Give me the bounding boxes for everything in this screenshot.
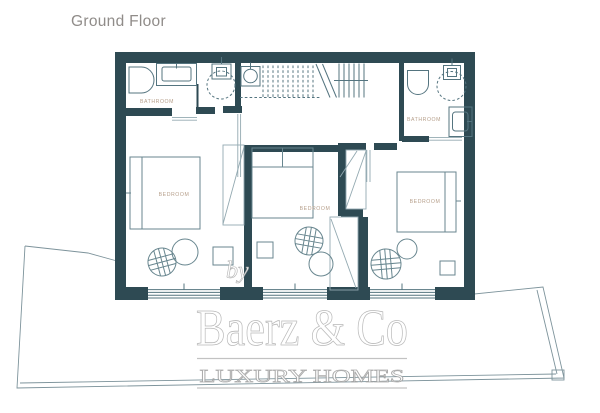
room-label-bathroom-right: BATHROOM [407, 117, 441, 123]
stairs [240, 64, 368, 98]
toilet-icon [129, 67, 154, 93]
chair-circle [309, 252, 333, 276]
window [263, 284, 327, 299]
washing-machine-icon [241, 63, 260, 87]
floorplan-drawing: BATHROOM BATHROOM BEDROOM BEDROOM BEDROO… [0, 0, 600, 413]
windows [148, 284, 435, 299]
nightstand [257, 242, 273, 258]
plant-icon [145, 245, 179, 279]
window [148, 284, 220, 299]
window [370, 284, 435, 299]
floorplan-image: Ground Floor [0, 0, 600, 413]
chair-circle [397, 239, 417, 259]
bathroom-left-fixtures [129, 57, 235, 99]
watermark-brand: Baerz & Co [196, 300, 408, 357]
bathroom-right-fixtures [408, 59, 473, 137]
room-label-bathroom-left: BATHROOM [140, 99, 174, 105]
shower-icon [207, 57, 235, 99]
nightstand [440, 261, 455, 275]
room-label-bedroom-right: BEDROOM [410, 199, 441, 205]
toilet-icon [408, 71, 429, 95]
room-label-bedroom-middle: BEDROOM [300, 206, 331, 212]
room-label-bedroom-left: BEDROOM [159, 192, 190, 198]
watermark-tagline: LUXURY HOMES [200, 366, 405, 386]
watermark-by: by [226, 258, 249, 284]
chair-circle [172, 239, 198, 265]
shower-icon [437, 59, 466, 101]
exterior-walls [115, 52, 475, 300]
sink-icon [157, 64, 197, 86]
watermark: by Baerz & Co LUXURY HOMES [196, 258, 408, 388]
